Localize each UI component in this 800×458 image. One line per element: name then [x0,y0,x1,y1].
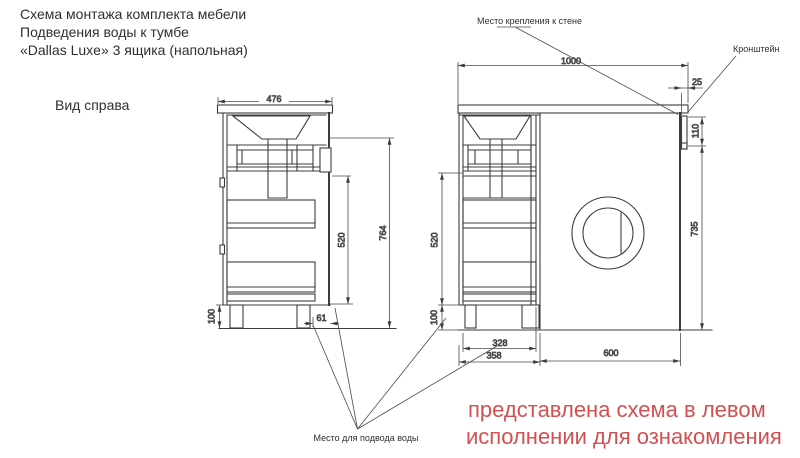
wall-mount-label: Место крепления к стене [477,16,582,26]
title-line3: «Dallas Luxe» 3 ящика (напольная) [20,42,248,58]
side-view-dimensions: 476 520 764 100 61 [207,94,395,328]
side-view-drawing: 476 520 764 100 61 [207,94,397,329]
assembly-diagram: Схема монтажа комплекта мебели Подведени… [0,0,800,458]
front-view-dimensions: 1000 25 110 735 520 100 328 [429,55,706,366]
red-note: представлена схема в левом исполнении дл… [466,397,782,449]
title-line1: Схема монтажа комплекта мебели [20,6,246,22]
assembly-scheme-page: Схема монтажа комплекта мебели Подведени… [0,0,800,458]
dim-label-100-front: 100 [429,310,439,325]
dim-label-600: 600 [603,348,618,358]
note-line1: представлена схема в левом [468,397,766,422]
dim-label-764: 764 [378,225,388,240]
dim-label-476: 476 [266,94,281,104]
title-line2: Подведения воды к тумбе [20,24,189,40]
bracket-label: Кронштейн [733,44,779,54]
front-view-cabinet-outline [458,105,712,330]
note-line2: исполнении для ознакомления [466,424,782,449]
side-view-cabinet-outline [218,105,397,329]
dim-label-25: 25 [692,77,702,87]
title-block: Схема монтажа комплекта мебели Подведени… [20,6,248,113]
dim-label-100-side: 100 [207,309,217,324]
wall-mount-leader-line [497,27,678,115]
dim-label-358: 358 [486,351,501,361]
view-label: Вид справа [55,97,130,113]
dim-label-520-front: 520 [430,232,440,247]
dim-label-735: 735 [690,221,700,236]
dim-label-520-side: 520 [337,232,347,247]
water-supply-label: Место для подвода воды [314,433,419,443]
dim-label-328: 328 [492,338,507,348]
dim-label-110: 110 [691,124,701,138]
front-view-drawing: 1000 25 110 735 520 100 328 [429,55,712,366]
dim-label-61: 61 [316,313,326,323]
